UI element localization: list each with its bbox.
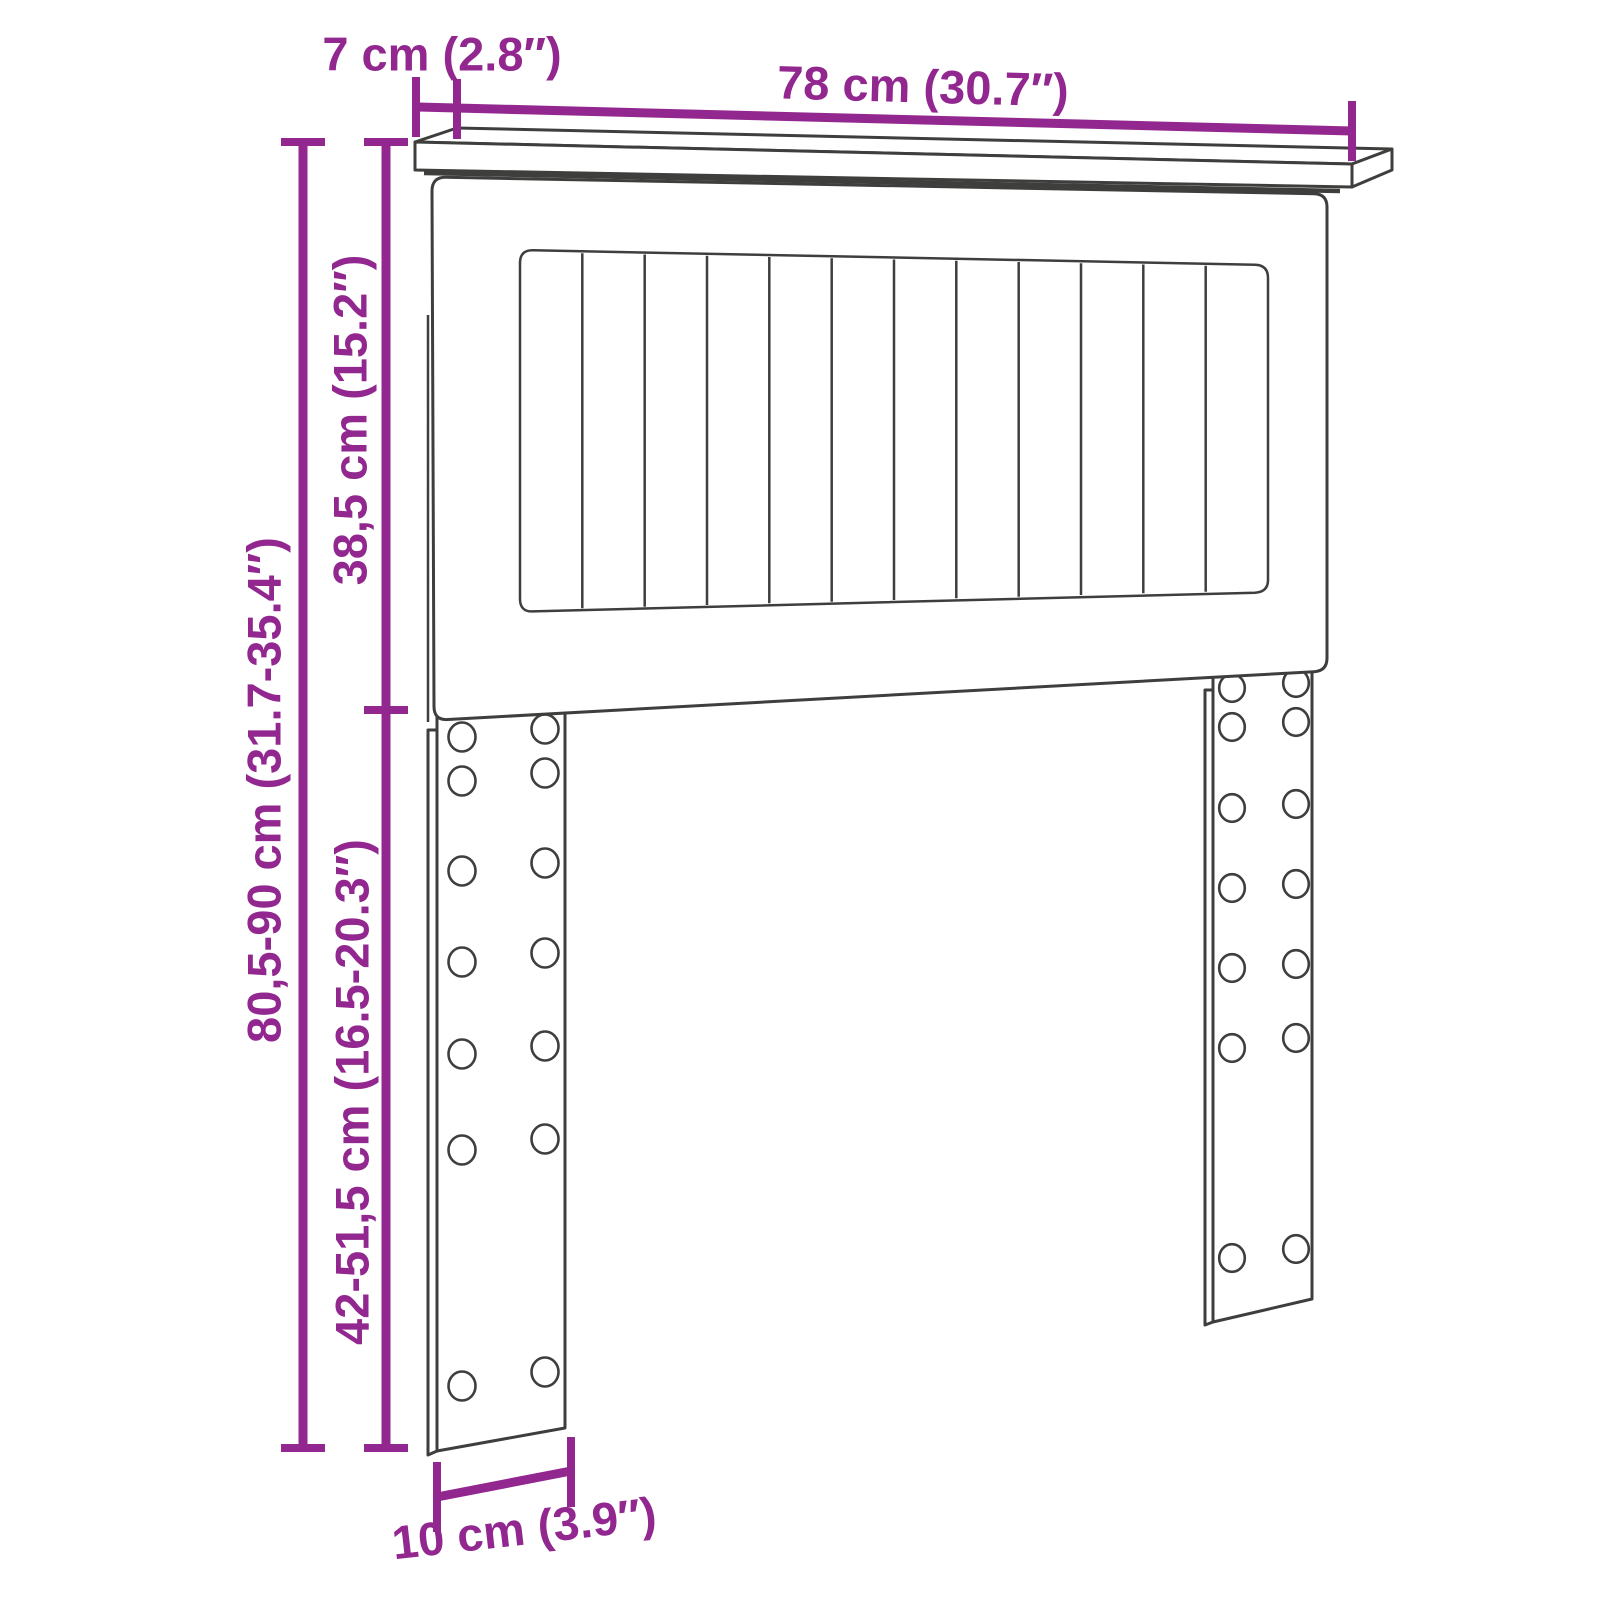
leg-adjustment-hole: [532, 1358, 559, 1387]
leg-adjustment-hole: [1219, 954, 1245, 982]
leg-adjustment-hole: [1283, 708, 1309, 736]
leg-adjustment-hole: [1283, 870, 1309, 898]
leg-adjustment-hole: [1219, 674, 1245, 702]
leg-width-line: [437, 1471, 571, 1497]
leg-adjustment-hole: [1283, 790, 1309, 818]
leg-adjustment-hole: [449, 723, 476, 752]
leg-adjustment-hole: [1219, 1244, 1245, 1272]
leg-adjustment-hole: [1283, 950, 1309, 978]
leg-adjustment-hole: [449, 1040, 476, 1069]
leg-adjustment-hole: [449, 1136, 476, 1165]
leg-adjustment-hole: [1283, 1235, 1309, 1263]
label-total-height: 80,5-90 cm (31.7-35.4″): [237, 537, 292, 1043]
label-width: 78 cm (30.7″): [776, 54, 1069, 117]
leg-adjustment-hole: [449, 767, 476, 796]
leg-adjustment-hole: [1219, 874, 1245, 902]
leg-adjustment-hole: [532, 715, 559, 744]
headboard-panel: [428, 177, 1327, 722]
label-shelf-depth: 7 cm (2.8″): [322, 27, 561, 82]
leg-adjustment-hole: [532, 1125, 559, 1154]
leg-adjustment-hole: [1219, 1034, 1245, 1062]
panel-front-face: [432, 177, 1327, 719]
label-leg-height: 42-51,5 cm (16.5-20.3″): [325, 839, 380, 1345]
left-leg-front-face: [437, 694, 565, 1451]
leg-adjustment-hole: [1219, 794, 1245, 822]
leg-adjustment-hole: [532, 849, 559, 878]
label-panel-height: 38,5 cm (15.2″): [323, 255, 378, 586]
leg-adjustment-hole: [449, 948, 476, 977]
leg-adjustment-hole: [532, 1032, 559, 1061]
leg-adjustment-hole: [449, 1372, 476, 1401]
leg-adjustment-hole: [449, 857, 476, 886]
right-leg: [1205, 655, 1312, 1325]
right-leg-front-face: [1213, 655, 1312, 1322]
leg-adjustment-hole: [532, 939, 559, 968]
headboard-diagram: 7 cm (2.8″) 78 cm (30.7″) 38,5 cm (15.2″…: [0, 0, 1600, 1600]
leg-adjustment-hole: [532, 759, 559, 788]
leg-adjustment-hole: [1283, 1024, 1309, 1052]
leg-adjustment-hole: [1219, 713, 1245, 741]
left-leg: [428, 694, 565, 1455]
